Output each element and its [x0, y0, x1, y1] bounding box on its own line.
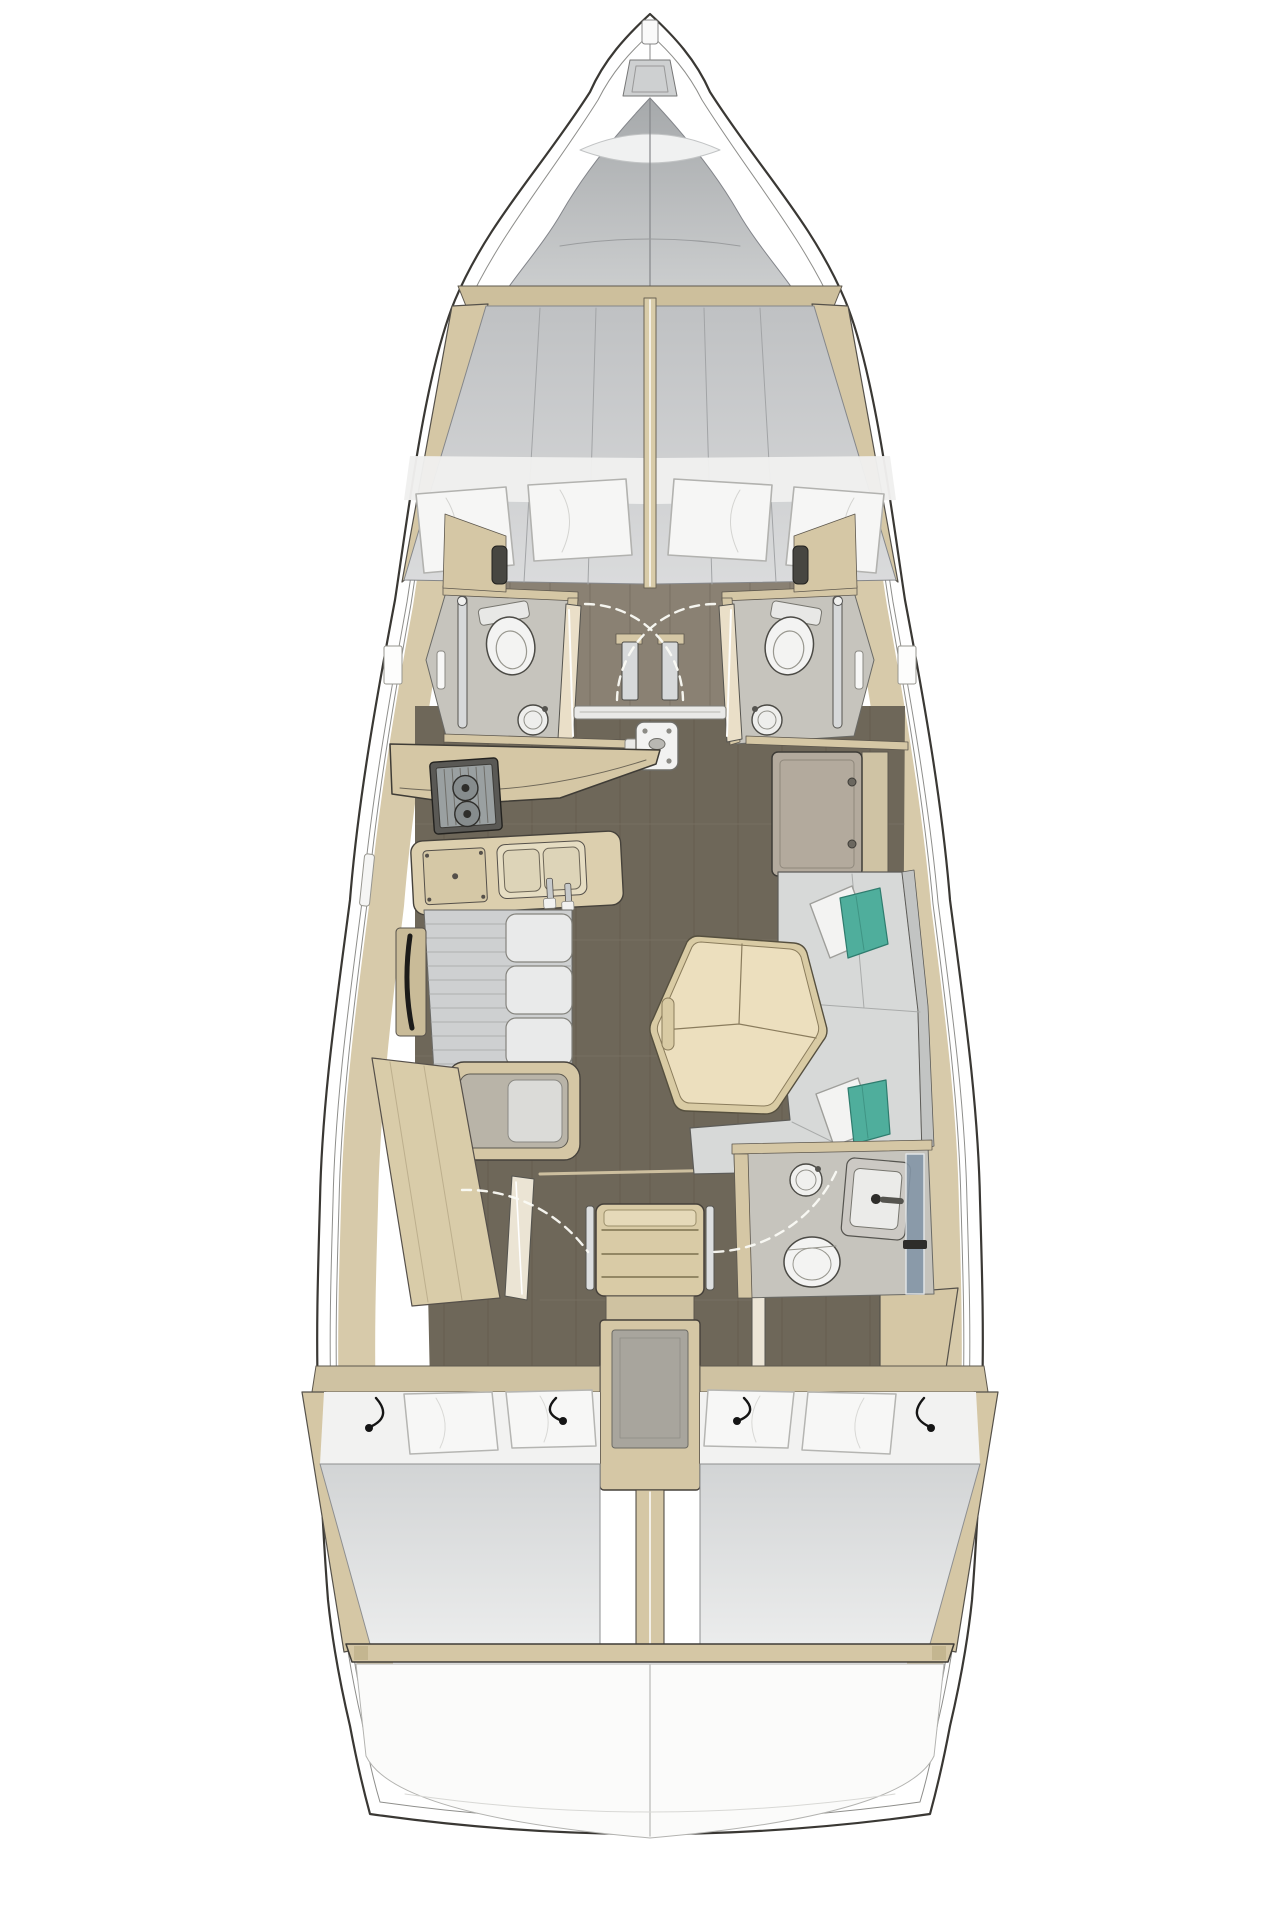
faucet-base	[562, 901, 574, 911]
sink-bowl	[503, 849, 541, 893]
cabinet-side	[862, 752, 888, 876]
sink-faucet	[815, 1166, 821, 1172]
bolt	[666, 758, 671, 763]
step-landing	[606, 1296, 694, 1320]
aft-bed-port	[302, 1390, 600, 1652]
storage-cabinet	[772, 752, 862, 876]
bolt	[666, 728, 671, 733]
cabin-door-port	[622, 642, 638, 700]
handrail-port	[586, 1206, 594, 1290]
vberth-port	[402, 304, 644, 584]
locker-notch	[932, 1646, 946, 1660]
starboard-cabinet	[772, 752, 888, 876]
anchor-locker	[623, 60, 677, 96]
transom-locker	[346, 1644, 954, 1662]
cabin-door-starboard	[662, 642, 678, 700]
shower-handle	[903, 1240, 927, 1249]
teal-pillow	[848, 1080, 890, 1144]
galley-island	[410, 831, 624, 919]
back-cushion	[506, 966, 572, 1014]
bow-fitting	[642, 20, 658, 44]
back-cushion	[506, 914, 572, 962]
bench-pad	[508, 1080, 562, 1142]
cabinet-knob	[848, 778, 856, 786]
handrail-starboard	[706, 1206, 714, 1290]
headboard	[312, 1366, 600, 1392]
stove	[430, 758, 503, 835]
cabinet-knob	[848, 840, 856, 848]
step-tread	[604, 1210, 696, 1226]
vberth-starboard	[656, 304, 898, 584]
mast-slot	[649, 739, 665, 750]
engine-hatch	[612, 1330, 688, 1448]
table-handle-notch	[662, 998, 674, 1050]
aft-bed-starboard	[700, 1390, 998, 1652]
locker-notch	[354, 1646, 368, 1660]
aft-head	[708, 1140, 934, 1298]
floor-plan-page	[0, 0, 1280, 1920]
shower-glass	[906, 1154, 924, 1294]
bolt	[642, 728, 647, 733]
faucet-base	[543, 898, 556, 909]
back-cushion	[506, 1018, 572, 1066]
yacht-floor-plan	[0, 0, 1280, 1920]
headboard	[700, 1366, 988, 1392]
vanity	[841, 1157, 912, 1240]
